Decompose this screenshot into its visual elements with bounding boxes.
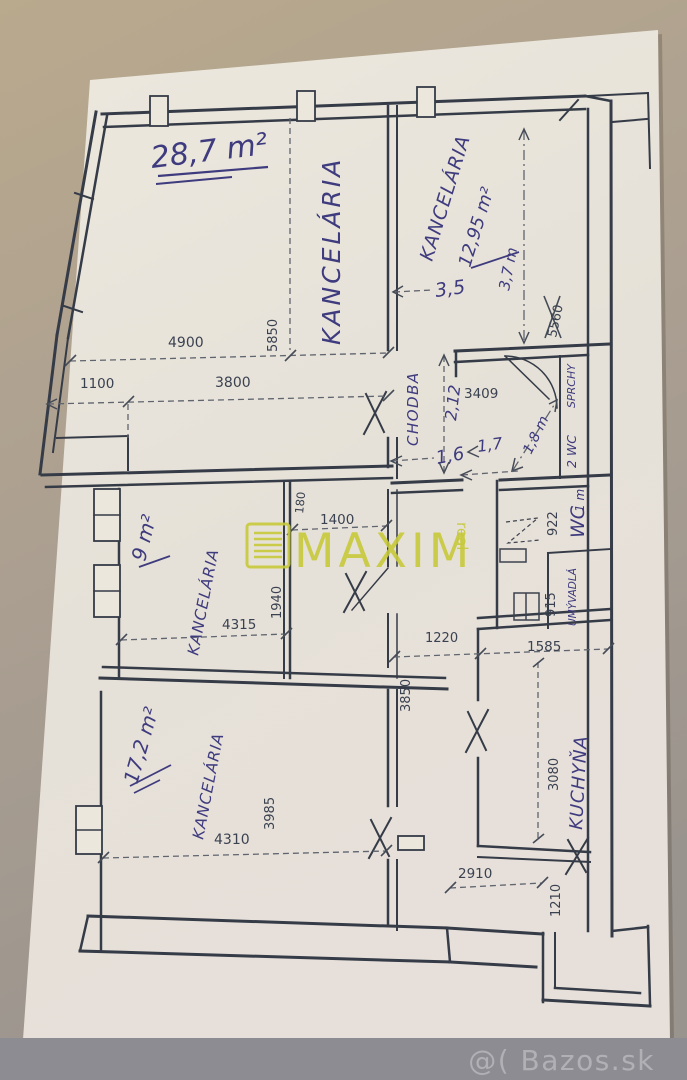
label-washbasins: UMÝVADLÁ <box>566 568 579 626</box>
dim-4315: 4315 <box>222 617 256 633</box>
dim-915: 915 <box>544 592 559 617</box>
dim-3850: 3850 <box>399 679 414 712</box>
dim-3080: 3080 <box>547 758 562 791</box>
dim-922: 922 <box>546 511 561 536</box>
dim-hand-3-5: 3,5 <box>434 276 467 302</box>
label-wc: WC <box>567 505 589 538</box>
maxim-brand-sub: real <box>453 522 471 550</box>
dim-5850: 5850 <box>266 319 281 352</box>
bazos-watermark-text: @( Bazos.sk <box>468 1044 655 1077</box>
dim-1100: 1100 <box>80 376 114 392</box>
maxim-brand-text: MAXIM <box>294 524 473 579</box>
dim-3985: 3985 <box>263 797 278 830</box>
label-hallway: CHODBA <box>404 371 422 446</box>
dim-2910: 2910 <box>458 866 492 882</box>
bazos-watermark-bar: @( Bazos.sk <box>0 1038 687 1080</box>
floor-plan-photo: 4900 5850 1100 3800 3409 5560 1400 180 1… <box>0 0 687 1080</box>
dim-1585: 1585 <box>527 639 561 655</box>
label-office-large: KANCELÁRIA <box>317 157 346 345</box>
dim-1210: 1210 <box>549 884 564 917</box>
dim-3409: 3409 <box>464 386 498 402</box>
dim-180: 180 <box>292 491 308 514</box>
dim-3800: 3800 <box>215 375 251 391</box>
dim-4900: 4900 <box>168 335 204 351</box>
label-wc2: 2 WC <box>564 435 579 468</box>
dim-4310: 4310 <box>214 832 250 848</box>
dim-hand-1-7: 1,7 <box>476 433 505 455</box>
dim-1940: 1940 <box>270 586 285 619</box>
label-showers: SPRCHY <box>565 363 578 408</box>
dim-1220: 1220 <box>425 631 458 646</box>
floor-plan-canvas: 4900 5850 1100 3800 3409 5560 1400 180 1… <box>0 0 687 1080</box>
